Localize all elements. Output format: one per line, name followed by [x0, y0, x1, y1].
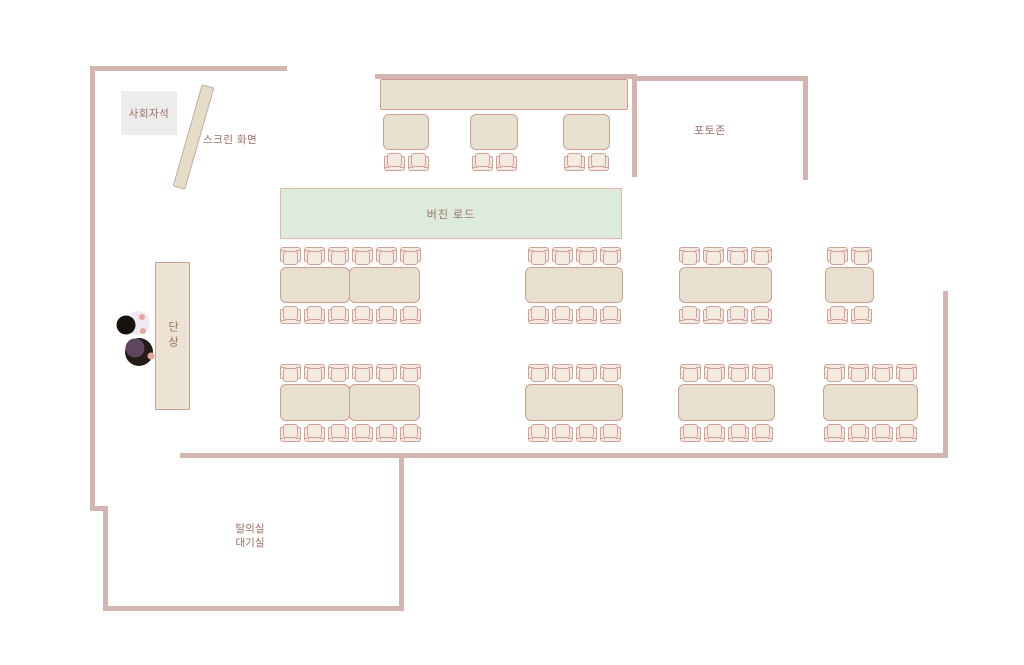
chair [872, 425, 893, 442]
chair-seat [827, 368, 842, 382]
chair [280, 364, 301, 381]
chair [679, 307, 700, 324]
chair [408, 154, 429, 171]
chair [352, 425, 373, 442]
chair [576, 307, 597, 324]
chair [728, 425, 749, 442]
chair [400, 307, 421, 324]
chair [384, 154, 405, 171]
stage-podium: 단상 [155, 262, 190, 410]
guest-table-row1-mid [525, 267, 623, 303]
chair-seat [579, 306, 594, 320]
chair-seat [706, 251, 721, 265]
chair [328, 247, 349, 264]
chair [352, 307, 373, 324]
chair [751, 247, 772, 264]
chair-seat [331, 424, 346, 438]
chair-seat [830, 306, 845, 320]
chair-seat [875, 424, 890, 438]
guest-table-row2-far-right [823, 384, 918, 421]
guest-table-row1-far-right [825, 267, 874, 303]
chair-seat [555, 368, 570, 382]
mc-seat-box: 사회자석 [121, 91, 177, 135]
dressing-room-line2: 대기실 [210, 536, 290, 550]
chair [280, 425, 301, 442]
wall-segment [632, 74, 637, 177]
chair-seat [603, 251, 618, 265]
chair-seat [682, 251, 697, 265]
chair-seat [355, 306, 370, 320]
chair [848, 364, 869, 381]
chair-seat [683, 368, 698, 382]
guest-table-row1-left [349, 267, 420, 303]
chair-seat [567, 153, 582, 167]
chair [352, 364, 373, 381]
chair-seat [307, 251, 322, 265]
chair-seat [411, 153, 426, 167]
chair [552, 247, 573, 264]
chair-seat [331, 306, 346, 320]
dressing-room-label: 탈의실 대기실 [210, 522, 290, 550]
chair [528, 307, 549, 324]
chair-seat [283, 424, 298, 438]
head-table [380, 79, 628, 110]
chair [472, 154, 493, 171]
chair-seat [531, 251, 546, 265]
chair-seat [283, 251, 298, 265]
chair [528, 364, 549, 381]
chair-seat [899, 424, 914, 438]
chair-seat [283, 306, 298, 320]
groom-figure [125, 338, 155, 366]
head-seat-table-3 [563, 114, 610, 150]
chair-seat [731, 368, 746, 382]
chair [827, 247, 848, 264]
chair-seat [307, 306, 322, 320]
chair-seat [603, 368, 618, 382]
chair [703, 307, 724, 324]
mc-seat-label: 사회자석 [129, 106, 170, 121]
chair-seat [555, 306, 570, 320]
chair [280, 247, 301, 264]
chair-seat [730, 306, 745, 320]
wall-segment [803, 76, 808, 180]
chair-seat [683, 424, 698, 438]
chair [600, 364, 621, 381]
chair [704, 425, 725, 442]
chair [703, 247, 724, 264]
chair [704, 364, 725, 381]
head-seat-table-1 [383, 114, 429, 150]
chair-seat [579, 424, 594, 438]
chair-seat [899, 368, 914, 382]
chair [872, 364, 893, 381]
wall-segment [103, 506, 108, 611]
chair-seat [707, 368, 722, 382]
chair [824, 364, 845, 381]
wall-segment [103, 606, 404, 611]
dressing-room-line1: 탈의실 [210, 522, 290, 536]
photo-zone-label: 포토존 [694, 122, 726, 138]
chair-seat [531, 424, 546, 438]
wall-segment [943, 291, 948, 458]
wall-segment [180, 453, 948, 458]
chair-seat [591, 153, 606, 167]
bride-figure [117, 311, 150, 335]
chair-seat [875, 368, 890, 382]
screen-label: 스크린 화면 [203, 132, 257, 147]
chair [600, 247, 621, 264]
chair [727, 307, 748, 324]
chair [896, 425, 917, 442]
chair [751, 307, 772, 324]
chair [376, 425, 397, 442]
chair [376, 307, 397, 324]
chair-seat [355, 424, 370, 438]
chair-seat [707, 424, 722, 438]
chair [552, 364, 573, 381]
chair-seat [531, 368, 546, 382]
chair-seat [854, 251, 869, 265]
virgin-road-label: 버진 로드 [427, 206, 476, 222]
chair-seat [403, 368, 418, 382]
chair-seat [379, 251, 394, 265]
chair-seat [307, 424, 322, 438]
chair [827, 307, 848, 324]
chair-seat [403, 306, 418, 320]
chair-seat [331, 251, 346, 265]
chair-seat [307, 368, 322, 382]
chair [896, 364, 917, 381]
chair-seat [355, 251, 370, 265]
chair-seat [379, 306, 394, 320]
floor-plan-canvas: 사회자석 스크린 화면 포토존 버진 로드 단상 탈의실 대기실 [0, 0, 1024, 665]
stage-label: 단상 [165, 321, 181, 351]
chair-seat [830, 251, 845, 265]
chair [400, 247, 421, 264]
guest-table-row2-left [280, 384, 350, 421]
chair [851, 307, 872, 324]
wall-segment [632, 76, 808, 81]
chair [552, 425, 573, 442]
guest-table-row2-mid [525, 384, 623, 421]
chair [328, 425, 349, 442]
chair [752, 425, 773, 442]
chair [528, 425, 549, 442]
chair-seat [355, 368, 370, 382]
chair-seat [403, 424, 418, 438]
chair [304, 425, 325, 442]
chair [352, 247, 373, 264]
chair [280, 307, 301, 324]
chair-seat [555, 424, 570, 438]
chair-seat [827, 424, 842, 438]
chair [752, 364, 773, 381]
chair-seat [379, 424, 394, 438]
couple-figures [112, 302, 160, 378]
chair [679, 247, 700, 264]
chair-seat [603, 424, 618, 438]
chair-seat [682, 306, 697, 320]
head-seat-table-2 [470, 114, 518, 150]
chair-seat [755, 368, 770, 382]
chair-seat [387, 153, 402, 167]
chair [728, 364, 749, 381]
chair-seat [579, 251, 594, 265]
chair-seat [754, 251, 769, 265]
chair [376, 364, 397, 381]
chair [564, 154, 585, 171]
chair-seat [755, 424, 770, 438]
chair-seat [754, 306, 769, 320]
chair [600, 425, 621, 442]
chair-seat [403, 251, 418, 265]
guest-table-row2-left [349, 384, 420, 421]
chair [304, 247, 325, 264]
chair [400, 364, 421, 381]
chair-seat [283, 368, 298, 382]
chair [680, 425, 701, 442]
chair [824, 425, 845, 442]
chair [528, 247, 549, 264]
chair [727, 247, 748, 264]
chair [304, 364, 325, 381]
chair [848, 425, 869, 442]
chair-seat [851, 368, 866, 382]
chair-seat [499, 153, 514, 167]
chair [576, 247, 597, 264]
wall-segment [90, 66, 95, 511]
chair-seat [555, 251, 570, 265]
chair-seat [531, 306, 546, 320]
chair [328, 307, 349, 324]
chair-seat [331, 368, 346, 382]
chair-seat [706, 306, 721, 320]
chair-seat [379, 368, 394, 382]
chair [576, 425, 597, 442]
chair [600, 307, 621, 324]
chair [552, 307, 573, 324]
guest-table-row1-left [280, 267, 350, 303]
chair [304, 307, 325, 324]
virgin-road-aisle: 버진 로드 [280, 188, 622, 239]
chair-seat [731, 424, 746, 438]
wall-segment [90, 66, 287, 71]
guest-table-row1-right [679, 267, 772, 303]
chair-seat [730, 251, 745, 265]
chair [400, 425, 421, 442]
chair-seat [475, 153, 490, 167]
chair [680, 364, 701, 381]
wall-segment [399, 455, 404, 611]
chair-seat [603, 306, 618, 320]
chair-seat [854, 306, 869, 320]
chair [588, 154, 609, 171]
chair [328, 364, 349, 381]
chair [496, 154, 517, 171]
chair [851, 247, 872, 264]
guest-table-row2-right [678, 384, 775, 421]
chair [376, 247, 397, 264]
chair [576, 364, 597, 381]
chair-seat [851, 424, 866, 438]
chair-seat [579, 368, 594, 382]
